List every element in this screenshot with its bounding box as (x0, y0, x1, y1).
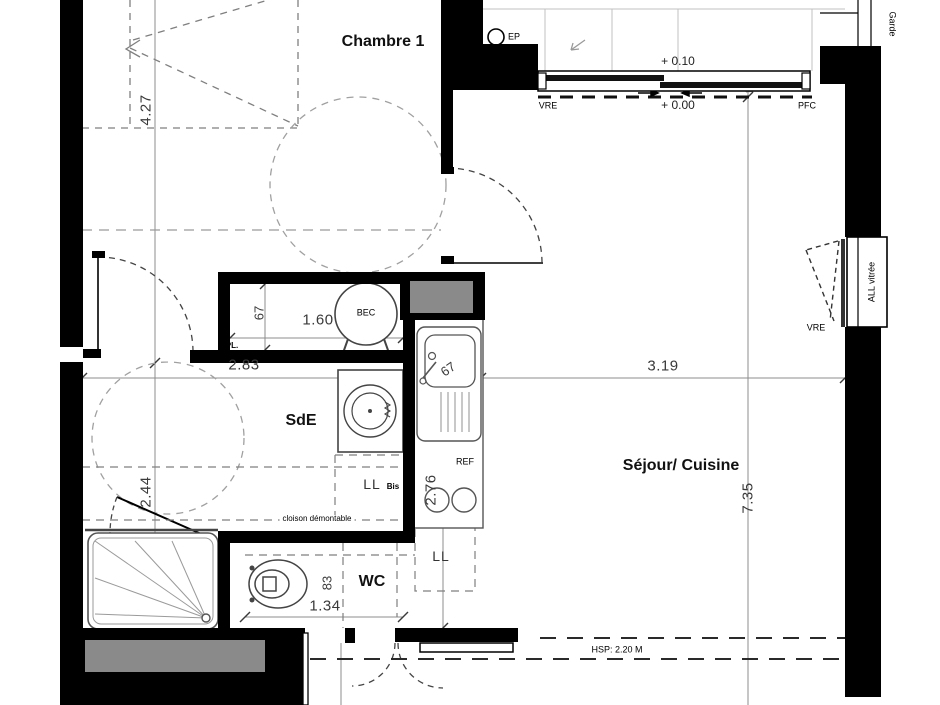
label-ll-bis: LL (363, 477, 381, 491)
label-bec: BEC (357, 309, 376, 318)
label-cloison-demontable: cloison démontable (280, 515, 355, 523)
sliding-window-icon (538, 71, 810, 91)
label-vre-top: VRE (539, 102, 558, 111)
duct-shaft-kitchen (410, 281, 473, 313)
dimension-4-27: 4.27 (139, 94, 154, 125)
duct-shaft-bottom (85, 640, 265, 672)
level-plus-010: + 0.10 (661, 55, 695, 67)
room-label-sde: SdE (285, 413, 316, 429)
side-window-icon (841, 237, 887, 327)
entry-door-leaf (420, 643, 513, 652)
turning-circle-sde (92, 362, 244, 514)
label-ll: LL (432, 549, 450, 563)
label-placard: PL. (226, 342, 238, 350)
label-all-vitree: ALL vitrée (868, 262, 877, 302)
dimension-67-closet: 67 (253, 306, 266, 320)
door-chambre-swing (447, 168, 543, 263)
room-label-chambre: Chambre 1 (342, 34, 425, 50)
label-garde-corps: Garde (888, 11, 897, 36)
dimension-7-35: 7.35 (741, 482, 756, 513)
dimension-2-76: 2.76 (424, 474, 439, 505)
label-vre-right: VRE (807, 324, 826, 333)
shower-icon (88, 533, 218, 629)
dimension-1-34: 1.34 (309, 599, 340, 614)
level-plus-000: + 0.00 (661, 99, 695, 111)
wardrobe-dashed-outline (82, 0, 298, 128)
door-sde-swing (92, 251, 193, 352)
ep-pipe-icon (488, 29, 504, 45)
dimension-1-60: 1.60 (302, 313, 333, 328)
room-label-wc: WC (359, 574, 386, 590)
window-opening-dashed (806, 241, 839, 321)
label-hsp: HSP: 2.20 M (588, 646, 645, 655)
entry-partition (303, 633, 308, 705)
label-ep: EP (508, 33, 520, 42)
floor-plan: Chambre 1 SdE WC Séjour/ Cuisine 4.27 2.… (0, 0, 940, 705)
water-heater-icon (335, 283, 397, 353)
dimension-2-83: 2.83 (228, 358, 259, 373)
dimension-83: 83 (321, 576, 334, 590)
toilet-icon (249, 560, 307, 608)
guardrail-lines (820, 0, 871, 46)
turning-circle-chambre (270, 97, 446, 273)
dimension-2-44: 2.44 (139, 476, 154, 507)
dimension-3-19: 3.19 (647, 359, 678, 374)
wardrobe-arrow (126, 40, 140, 57)
room-label-sejour: Séjour/ Cuisine (623, 458, 739, 474)
label-ref: REF (456, 458, 474, 467)
washing-machine-icon (338, 370, 403, 452)
label-ll-bis-suffix: Bis (387, 483, 399, 491)
label-pfc: PFC (798, 102, 816, 111)
